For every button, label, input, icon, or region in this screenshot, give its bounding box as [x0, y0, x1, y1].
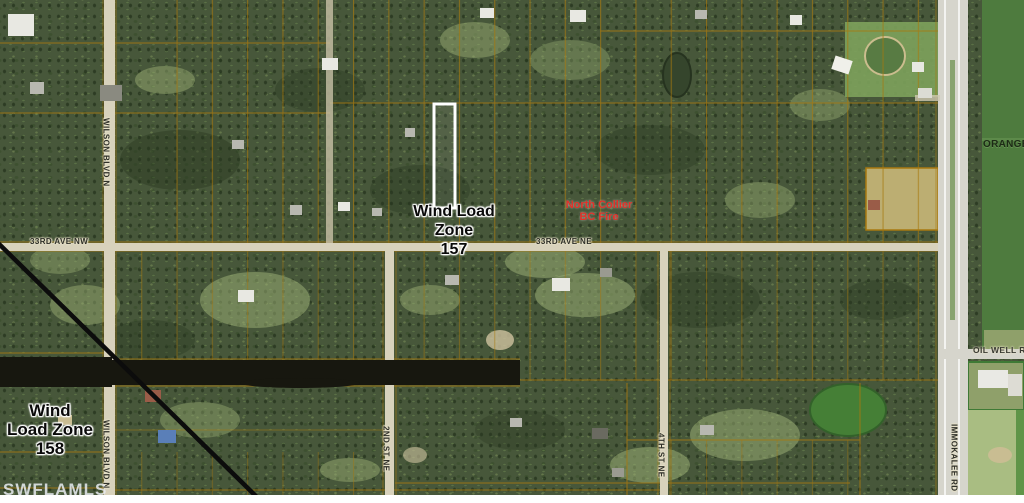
house-marker: [322, 58, 338, 70]
house-marker: [238, 290, 254, 302]
road-1st-st: [326, 0, 333, 243]
pond-bottom-right: [810, 384, 886, 436]
wind-load-zone-157-label: Wind Load Zone 157: [404, 202, 504, 259]
road-label-2nd-st-ne: 2ND ST NE: [381, 426, 389, 471]
house-marker: [600, 268, 612, 277]
road-label-wilson-blvd-lower: WILSON BLVD N: [101, 420, 109, 489]
house-marker: [8, 14, 34, 36]
fire-station-line1: North Collier: [548, 199, 650, 211]
area-label-orange-tree: ORANGE T: [983, 140, 1024, 151]
road-label-33rd-ave-nw: 33RD AVE NW: [30, 238, 88, 246]
house-marker: [158, 430, 176, 443]
house-marker: [695, 10, 707, 19]
house-marker: [868, 200, 880, 210]
wind-load-zone-158-label: Wind Load Zone 158: [0, 401, 100, 458]
wind-load-zone-157-line2: Zone: [404, 221, 504, 240]
wind-load-zone-157-line1: Wind Load: [404, 202, 504, 221]
house-marker: [612, 468, 624, 477]
house-marker: [918, 88, 932, 98]
house-marker: [592, 428, 608, 439]
road-label-wilson-blvd-upper: WILSON BLVD N: [101, 118, 109, 187]
wind-load-zone-158-line3: 158: [0, 439, 100, 458]
fire-station-line2: BC Fire: [548, 211, 650, 223]
road-label-4th-st-ne: 4TH ST NE: [656, 433, 664, 478]
road-median: [950, 60, 955, 320]
canal: [0, 357, 520, 388]
house-marker: [445, 275, 459, 285]
image-bottom-margin: [0, 495, 1024, 503]
house-marker: [700, 425, 714, 435]
wind-load-zone-158-line1: Wind: [0, 401, 100, 420]
house-marker: [30, 82, 44, 94]
house-marker: [338, 202, 350, 211]
road-label-immokalee-rd: IMMOKALEE RD: [949, 424, 957, 491]
house-marker: [290, 205, 302, 215]
house-marker: [100, 85, 122, 101]
house-marker: [480, 8, 494, 18]
fire-station-label: North Collier BC Fire: [548, 199, 650, 223]
orange-tree-field: [982, 0, 1024, 348]
watermark: SWFLAMLS: [3, 481, 107, 499]
house-marker: [570, 10, 586, 22]
east-fields: [968, 0, 1024, 495]
road-label-oil-well-rd: OIL WELL R: [973, 346, 1024, 355]
house-marker: [790, 15, 802, 25]
house-marker: [510, 418, 522, 427]
house-marker: [372, 208, 382, 216]
road-label-33rd-ave-ne: 33RD AVE NE: [536, 238, 592, 246]
house-marker: [232, 140, 244, 149]
subject-parcel-outline: [434, 104, 455, 208]
wind-load-zone-158-line2: Load Zone: [0, 420, 100, 439]
commercial-building: [978, 370, 1008, 388]
house-marker: [552, 278, 570, 291]
wind-load-zone-157-line3: 157: [404, 240, 504, 259]
aerial-map: 33RD AVE NW 33RD AVE NE WILSON BLVD N WI…: [0, 0, 1024, 503]
map-image: [0, 0, 1024, 503]
house-marker: [912, 62, 924, 72]
house-marker: [405, 128, 415, 137]
